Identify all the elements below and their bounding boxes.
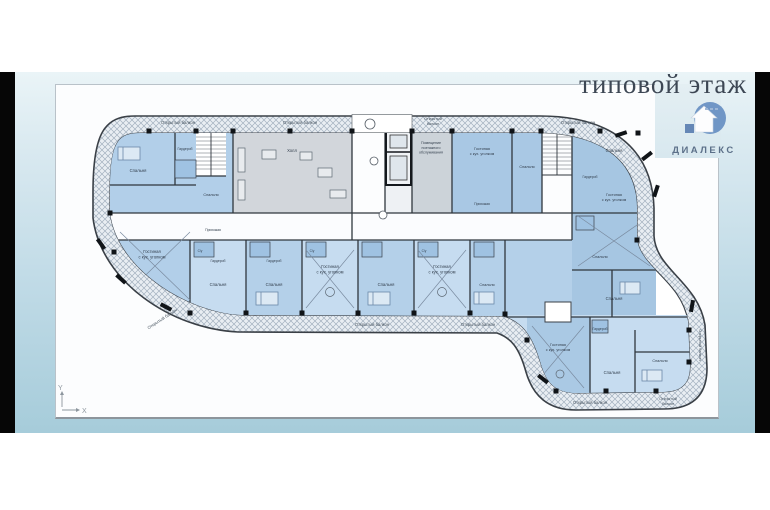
room-label: С/у xyxy=(422,249,427,253)
column-square xyxy=(410,129,415,134)
room-label: Гардероб xyxy=(178,147,193,151)
axis-x-label: X xyxy=(82,408,87,415)
column-square xyxy=(288,129,293,134)
balcony-label: Открытый балкон xyxy=(561,120,596,125)
room-label: Спальня xyxy=(606,148,623,153)
column-square xyxy=(356,311,361,316)
wall-mark xyxy=(641,151,653,162)
left-black-bar xyxy=(0,72,15,433)
room-label: Спальня xyxy=(592,255,607,259)
column-square xyxy=(412,311,417,316)
column-square xyxy=(300,311,305,316)
units-row xyxy=(190,240,505,316)
hall-room xyxy=(233,133,352,213)
room-label: Спальня xyxy=(210,282,227,287)
column-square xyxy=(194,129,199,134)
wall-mark xyxy=(615,130,628,138)
column-square xyxy=(654,389,659,394)
grid-bubble xyxy=(365,119,375,129)
column-square xyxy=(636,131,641,136)
column-square xyxy=(147,129,152,134)
room-label: Спальня xyxy=(479,283,494,287)
column-square xyxy=(510,129,515,134)
column-square xyxy=(350,129,355,134)
room-label: Спальня xyxy=(378,282,395,287)
column-square xyxy=(525,338,530,343)
room-label: Прихожая xyxy=(205,228,221,232)
balcony-label: Открытый балкон xyxy=(461,322,496,327)
axis-marker: Y X xyxy=(58,385,87,415)
column-square xyxy=(604,389,609,394)
balcony-label: Открытый балкон xyxy=(161,120,196,125)
column-square xyxy=(108,211,113,216)
column-square xyxy=(188,311,193,316)
floorplan-drawing: СпальняГардеробСпальняГостинаяс кух. уго… xyxy=(55,84,719,419)
balcony-label: Открытый балкон xyxy=(698,329,702,360)
room-label: Холл xyxy=(287,148,297,153)
room-label: Спальня xyxy=(606,296,623,301)
room-label: Гардероб xyxy=(267,259,282,263)
apartment-center xyxy=(452,133,512,213)
grid-bubble xyxy=(370,157,378,165)
column-square xyxy=(570,129,575,134)
room-label: Спальня xyxy=(130,168,147,173)
column-square xyxy=(554,389,559,394)
column-square xyxy=(598,129,603,134)
presentation-slide: типовой этаж ДИАЛЕКС xyxy=(0,0,770,510)
room-label: С/у xyxy=(310,249,315,253)
room-label: Спальня xyxy=(519,165,534,169)
column-square xyxy=(687,328,692,333)
axis-y-label: Y xyxy=(58,385,63,392)
balcony-label: Открытый балкон xyxy=(355,322,390,327)
band-gap xyxy=(352,115,412,135)
room-label: Спальня xyxy=(604,370,621,375)
grid-bubble xyxy=(379,211,387,219)
room-label: Помещениепоэтажногообслуживания xyxy=(419,141,443,155)
room-label: С/у xyxy=(198,249,203,253)
room-label: Прихожая xyxy=(474,202,490,206)
balcony-label: Открытый балкон xyxy=(573,400,608,405)
column-square xyxy=(231,129,236,134)
room-label: Спальня xyxy=(203,193,218,197)
apartment-center2 xyxy=(512,133,542,213)
elevators xyxy=(386,131,411,185)
column-square xyxy=(468,311,473,316)
wall-mark xyxy=(652,185,660,198)
column-square xyxy=(503,312,508,317)
corridor xyxy=(109,213,572,240)
room-label: Гардероб xyxy=(211,259,226,263)
column-square xyxy=(450,129,455,134)
light-well xyxy=(545,302,571,322)
column-square xyxy=(112,250,117,255)
balcony-label: Открытый балкон xyxy=(283,120,318,125)
column-square xyxy=(635,238,640,243)
column-square xyxy=(244,311,249,316)
right-black-bar xyxy=(755,72,770,433)
room-label: Спальня xyxy=(652,359,667,363)
column-square xyxy=(539,129,544,134)
column-square xyxy=(687,360,692,365)
room-label: Гардероб xyxy=(593,327,608,331)
room-label: Спальня xyxy=(266,282,283,287)
room-label: Гардероб xyxy=(583,175,598,179)
